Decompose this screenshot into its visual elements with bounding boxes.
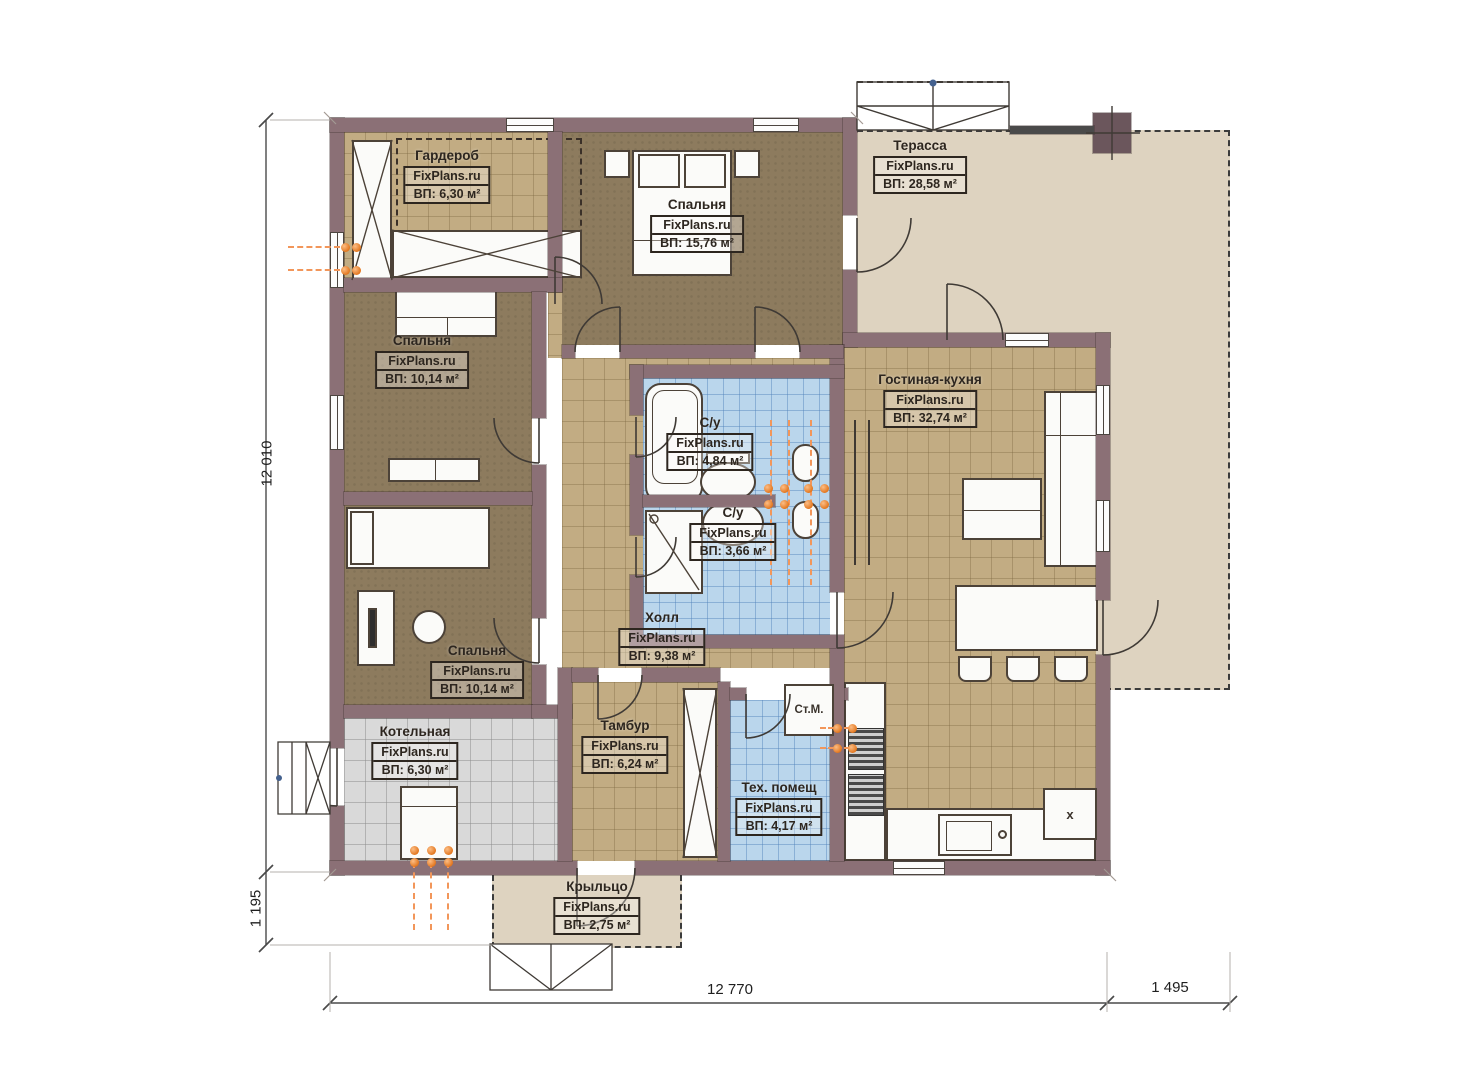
wall-segment bbox=[843, 333, 1110, 347]
radiator-dot bbox=[820, 484, 829, 493]
label-box: FixPlans.ruВП: 4,84 м² bbox=[666, 433, 753, 471]
room-name: Спальня bbox=[668, 197, 726, 212]
room-label-tambour: Тамбур FixPlans.ruВП: 6,24 м² bbox=[581, 718, 668, 774]
pillow bbox=[684, 154, 726, 188]
radiator-pipe-line bbox=[447, 862, 449, 930]
window bbox=[753, 118, 799, 132]
bar-stool bbox=[1006, 656, 1040, 682]
dresser bbox=[388, 458, 480, 482]
sofa-arm-line bbox=[1046, 435, 1096, 436]
room-name: С/у bbox=[699, 415, 720, 430]
dimension-label-left: 12 010 bbox=[259, 428, 276, 500]
bar-stool bbox=[1054, 656, 1088, 682]
radiator-dot bbox=[804, 500, 813, 509]
radiator-dot bbox=[804, 484, 813, 493]
radiator-dot bbox=[780, 484, 789, 493]
room-area: ВП: 9,38 м² bbox=[620, 648, 703, 664]
radiator-dot bbox=[820, 500, 829, 509]
window bbox=[1005, 333, 1049, 347]
room-name: Котельная bbox=[380, 724, 451, 739]
room-label-porch: Крыльцо FixPlans.ruВП: 2,75 м² bbox=[553, 879, 640, 935]
kitchen-sink bbox=[938, 814, 1012, 856]
wall-segment bbox=[532, 292, 546, 418]
kitchen-counter bbox=[844, 682, 886, 861]
side-steps bbox=[276, 742, 330, 814]
bar-stool bbox=[958, 656, 992, 682]
terrace-beam bbox=[1010, 126, 1094, 134]
room-area: ВП: 10,14 м² bbox=[377, 371, 467, 387]
label-box: FixPlans.ruВП: 28,58 м² bbox=[873, 156, 967, 194]
label-box: FixPlans.ruВП: 9,38 м² bbox=[618, 628, 705, 666]
dimension-label-bottom-right: 1 495 bbox=[1125, 979, 1215, 996]
label-box: FixPlans.ruВП: 10,14 м² bbox=[375, 351, 469, 389]
terrace-column bbox=[1093, 113, 1131, 153]
radiator-dot bbox=[410, 846, 419, 855]
radiator-dot bbox=[427, 846, 436, 855]
floor-plan: x Ст.М. bbox=[0, 0, 1473, 1080]
room-name: С/у bbox=[722, 505, 743, 520]
room-name: Спальня bbox=[448, 643, 506, 658]
wall-segment bbox=[572, 668, 598, 682]
wall-segment bbox=[330, 861, 577, 875]
room-name: Гостиная-кухня bbox=[878, 372, 981, 387]
wall-segment bbox=[548, 132, 562, 292]
tv-stand bbox=[854, 420, 870, 565]
window bbox=[330, 395, 344, 450]
room-label-bath-2: С/у FixPlans.ruВП: 3,66 м² bbox=[689, 505, 776, 561]
table-line bbox=[964, 510, 1040, 511]
watermark-text: FixPlans.ru bbox=[737, 800, 820, 818]
radiator-pipe-line bbox=[288, 246, 340, 248]
wall-segment bbox=[642, 668, 720, 682]
wall-segment bbox=[532, 465, 546, 618]
room-area: ВП: 6,30 м² bbox=[405, 186, 488, 202]
wall-segment bbox=[800, 345, 843, 358]
wall-segment bbox=[718, 682, 730, 861]
pillow bbox=[350, 511, 374, 565]
watermark-text: FixPlans.ru bbox=[405, 168, 488, 186]
room-label-terrace: Терасса FixPlans.ruВП: 28,58 м² bbox=[873, 138, 967, 194]
desk-chair bbox=[412, 610, 446, 644]
dresser-line bbox=[435, 460, 436, 480]
washing-machine-label: Ст.М. bbox=[795, 704, 824, 716]
wardrobe-crossed bbox=[683, 688, 717, 858]
radiator-dot bbox=[352, 266, 361, 275]
label-box: FixPlans.ruВП: 6,30 м² bbox=[403, 166, 490, 204]
room-area: ВП: 15,76 м² bbox=[652, 235, 742, 251]
dimension-label-bottom-left: 1 195 bbox=[248, 879, 265, 939]
room-area: ВП: 10,14 м² bbox=[432, 681, 522, 697]
window bbox=[1096, 385, 1110, 435]
radiator-dot bbox=[833, 744, 842, 753]
label-box: FixPlans.ruВП: 32,74 м² bbox=[883, 390, 977, 428]
window bbox=[330, 232, 344, 288]
sink-faucet bbox=[998, 830, 1007, 839]
label-box: FixPlans.ruВП: 15,76 м² bbox=[650, 215, 744, 253]
room-area: ВП: 6,24 м² bbox=[583, 756, 666, 772]
corner-sofa bbox=[1044, 391, 1098, 567]
room-area: ВП: 32,74 м² bbox=[885, 410, 975, 426]
wall-segment bbox=[830, 345, 844, 592]
room-area: ВП: 2,75 м² bbox=[555, 917, 638, 933]
wall-segment bbox=[630, 365, 844, 378]
counter-cell-x-label: x bbox=[1066, 807, 1073, 822]
watermark-text: FixPlans.ru bbox=[652, 217, 742, 235]
watermark-text: FixPlans.ru bbox=[668, 435, 751, 453]
radiator-dot bbox=[848, 744, 857, 753]
label-box: FixPlans.ruВП: 4,17 м² bbox=[735, 798, 822, 836]
room-label-bath-1: С/у FixPlans.ruВП: 4,84 м² bbox=[666, 415, 753, 471]
wall-segment bbox=[1096, 333, 1110, 600]
radiator-dot bbox=[410, 858, 419, 867]
watermark-text: FixPlans.ru bbox=[555, 899, 638, 917]
wall-segment bbox=[1096, 655, 1110, 875]
sofa bbox=[395, 287, 497, 337]
wall-segment bbox=[620, 345, 755, 358]
room-area: ВП: 6,30 м² bbox=[373, 762, 456, 778]
nightstand bbox=[604, 150, 630, 178]
room-area: ВП: 28,58 м² bbox=[875, 176, 965, 192]
watermark-text: FixPlans.ru bbox=[885, 392, 975, 410]
label-box: FixPlans.ruВП: 3,66 м² bbox=[689, 523, 776, 561]
room-name: Тамбур bbox=[601, 718, 650, 733]
room-label-boiler: Котельная FixPlans.ruВП: 6,30 м² bbox=[371, 724, 458, 780]
watermark-text: FixPlans.ru bbox=[432, 663, 522, 681]
radiator-dot bbox=[444, 846, 453, 855]
wall-segment bbox=[562, 345, 575, 358]
wall-segment bbox=[630, 365, 643, 415]
room-name: Крыльцо bbox=[566, 879, 627, 894]
sofa-back-line bbox=[1060, 393, 1061, 565]
watermark-text: FixPlans.ru bbox=[875, 158, 965, 176]
radiator-pipe-line bbox=[288, 269, 340, 271]
radiator-dot bbox=[352, 243, 361, 252]
sink-bowl bbox=[946, 821, 992, 851]
room-name: Терасса bbox=[893, 138, 947, 153]
room-label-tech: Тех. помещ FixPlans.ruВП: 4,17 м² bbox=[735, 780, 822, 836]
cooktop-grate bbox=[848, 774, 884, 816]
watermark-text: FixPlans.ru bbox=[620, 630, 703, 648]
room-name: Холл bbox=[645, 610, 679, 625]
porch-roof bbox=[490, 944, 612, 990]
floor-hall-strip bbox=[548, 292, 562, 358]
radiator-dot bbox=[764, 484, 773, 493]
dimension-label-bottom-main: 12 770 bbox=[660, 981, 800, 998]
radiator-dot bbox=[780, 500, 789, 509]
room-name: Тех. помещ bbox=[741, 780, 816, 795]
wall-segment bbox=[344, 492, 532, 505]
window bbox=[1096, 500, 1110, 552]
room-area: ВП: 3,66 м² bbox=[691, 543, 774, 559]
wall-segment bbox=[635, 861, 1110, 875]
nightstand bbox=[734, 150, 760, 178]
counter-cell-x: x bbox=[1043, 788, 1097, 840]
room-label-living-kitchen: Гостиная-кухня FixPlans.ruВП: 32,74 м² bbox=[878, 372, 981, 428]
watermark-text: FixPlans.ru bbox=[691, 525, 774, 543]
radiator-pipe-line bbox=[430, 862, 432, 930]
room-area: ВП: 4,17 м² bbox=[737, 818, 820, 834]
wall-segment bbox=[558, 668, 572, 861]
room-label-hall: Холл FixPlans.ruВП: 9,38 м² bbox=[618, 610, 705, 666]
room-name: Спальня bbox=[393, 333, 451, 348]
radiator-dot bbox=[341, 243, 350, 252]
room-name: Гардероб bbox=[415, 148, 479, 163]
pillow bbox=[638, 154, 680, 188]
window bbox=[893, 861, 945, 875]
coffee-table bbox=[962, 478, 1042, 540]
wall-segment bbox=[730, 688, 746, 700]
towel-radiator bbox=[792, 444, 819, 482]
room-label-bedroom-mid: Спальня FixPlans.ruВП: 10,14 м² bbox=[375, 333, 469, 389]
watermark-text: FixPlans.ru bbox=[377, 353, 467, 371]
room-label-bedroom-top: Спальня FixPlans.ruВП: 15,76 м² bbox=[650, 197, 744, 253]
wall-segment bbox=[344, 705, 532, 718]
wall-segment bbox=[830, 648, 844, 861]
label-box: FixPlans.ruВП: 10,14 м² bbox=[430, 661, 524, 699]
label-box: FixPlans.ruВП: 2,75 м² bbox=[553, 897, 640, 935]
wall-segment bbox=[344, 278, 562, 292]
radiator-pipe-line bbox=[413, 862, 415, 930]
radiator-dot bbox=[444, 858, 453, 867]
desk-monitor bbox=[368, 608, 377, 648]
dining-table bbox=[955, 585, 1098, 651]
wardrobe-crossed bbox=[352, 140, 392, 280]
window bbox=[506, 118, 554, 132]
boiler-line bbox=[402, 806, 456, 807]
room-label-bedroom-low: Спальня FixPlans.ruВП: 10,14 м² bbox=[430, 643, 524, 699]
label-box: FixPlans.ruВП: 6,24 м² bbox=[581, 736, 668, 774]
watermark-text: FixPlans.ru bbox=[373, 744, 456, 762]
radiator-dot bbox=[341, 266, 350, 275]
room-area: ВП: 4,84 м² bbox=[668, 453, 751, 469]
radiator-dot bbox=[848, 724, 857, 733]
label-box: FixPlans.ruВП: 6,30 м² bbox=[371, 742, 458, 780]
radiator-dot bbox=[427, 858, 436, 867]
sofa-seat-line bbox=[397, 317, 495, 318]
room-label-wardrobe: Гардероб FixPlans.ruВП: 6,30 м² bbox=[403, 148, 490, 204]
wall-segment bbox=[843, 118, 857, 215]
pergola bbox=[857, 80, 1009, 131]
wall-segment bbox=[630, 455, 643, 535]
radiator-dot bbox=[833, 724, 842, 733]
watermark-text: FixPlans.ru bbox=[583, 738, 666, 756]
